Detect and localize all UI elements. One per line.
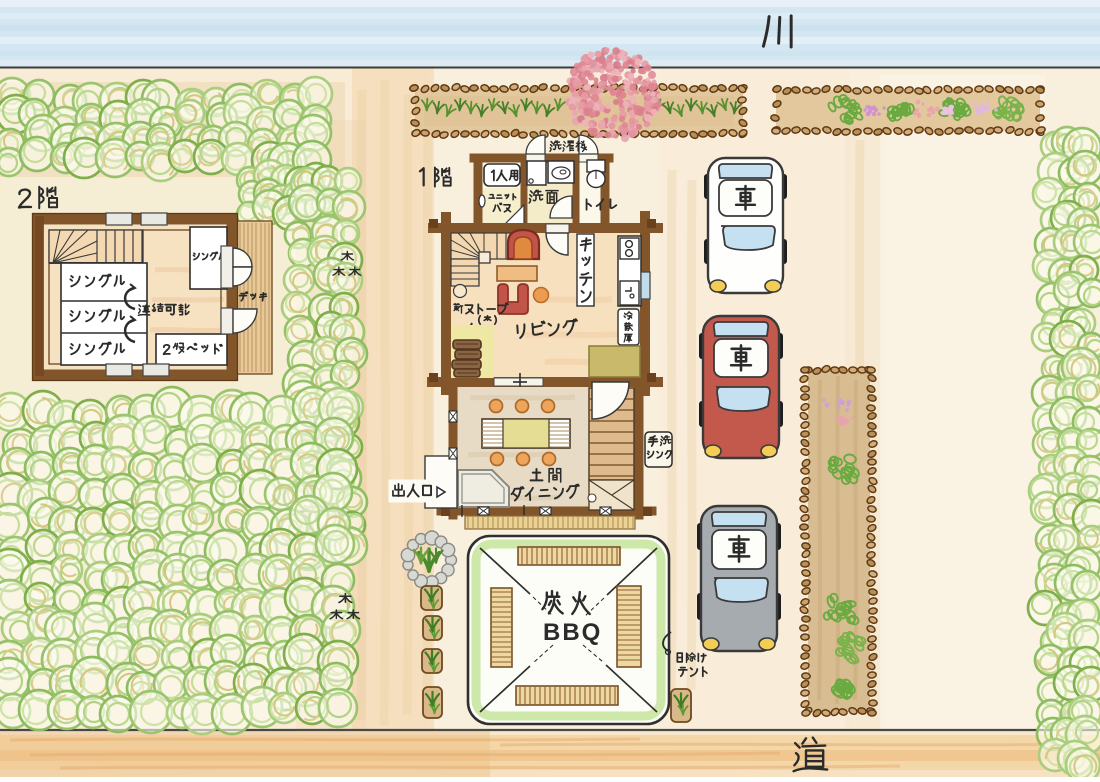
svg-text:BBQ: BBQ (543, 619, 602, 646)
